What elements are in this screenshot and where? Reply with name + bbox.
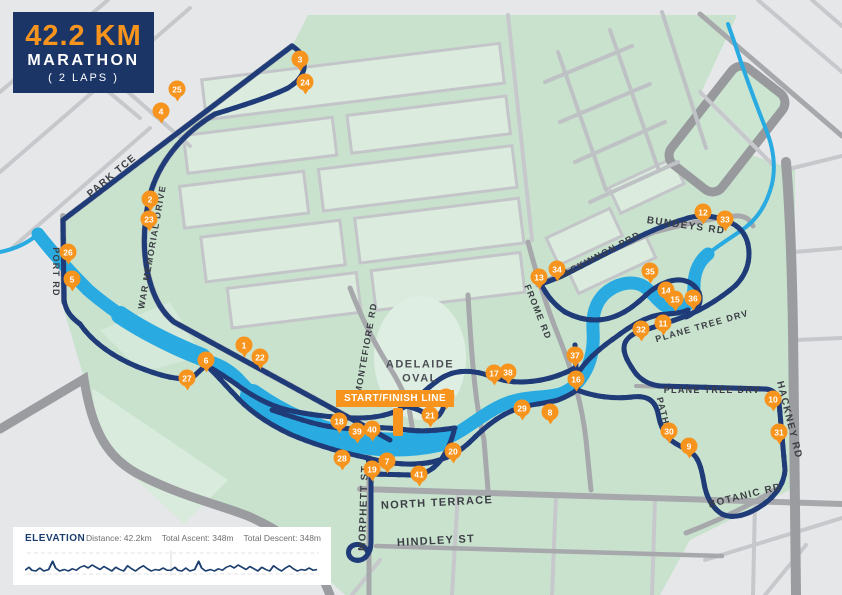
km-marker-number: 17: [489, 368, 498, 378]
km-marker-number: 22: [255, 352, 264, 362]
km-marker-number: 8: [548, 407, 553, 417]
elevation-descent: Total Descent: 348m: [244, 533, 321, 543]
km-marker-number: 39: [352, 426, 361, 436]
km-marker-number: 12: [698, 207, 707, 217]
km-marker-number: 33: [720, 214, 729, 224]
km-marker-10: 10: [765, 391, 782, 408]
km-marker-25: 25: [169, 81, 186, 98]
km-marker-26: 26: [60, 244, 77, 261]
km-marker-number: 40: [367, 424, 376, 434]
badge-laps: ( 2 LAPS ): [48, 73, 119, 85]
km-marker-number: 11: [659, 318, 668, 328]
km-marker-number: 9: [687, 441, 692, 451]
elevation-ascent: Total Ascent: 348m: [162, 533, 234, 543]
km-marker-number: 18: [334, 416, 343, 426]
km-marker-7: 7: [379, 453, 396, 470]
km-marker-number: 24: [300, 77, 309, 87]
km-marker-38: 38: [500, 364, 517, 381]
km-marker-32: 32: [633, 321, 650, 338]
km-marker-number: 30: [664, 426, 673, 436]
km-marker-12: 12: [695, 204, 712, 221]
km-marker-number: 6: [204, 355, 209, 365]
oval-label-line1: ADELAIDE: [386, 358, 454, 372]
km-marker-number: 35: [645, 266, 654, 276]
km-marker-number: 31: [774, 427, 783, 437]
km-marker-number: 37: [570, 350, 579, 360]
elevation-panel: ELEVATION Distance: 42.2km Total Ascent:…: [13, 527, 331, 585]
km-marker-number: 7: [385, 456, 390, 466]
km-marker-number: 15: [670, 294, 679, 304]
km-marker-24: 24: [297, 74, 314, 91]
km-marker-16: 16: [568, 371, 585, 388]
km-marker-8: 8: [542, 404, 559, 421]
km-marker-number: 34: [552, 264, 561, 274]
km-marker-number: 28: [337, 453, 346, 463]
km-marker-40: 40: [364, 421, 381, 438]
km-marker-number: 3: [298, 54, 303, 64]
km-marker-number: 23: [144, 214, 153, 224]
km-marker-number: 32: [636, 324, 645, 334]
km-marker-number: 5: [70, 274, 75, 284]
km-marker-18: 18: [331, 413, 348, 430]
km-marker-33: 33: [717, 211, 734, 228]
km-marker-number: 20: [448, 446, 457, 456]
km-marker-31: 31: [771, 424, 788, 441]
km-marker-number: 1: [242, 340, 247, 350]
km-marker-number: 26: [63, 247, 72, 257]
km-marker-29: 29: [514, 400, 531, 417]
elevation-title: ELEVATION: [25, 533, 85, 544]
km-marker-22: 22: [252, 349, 269, 366]
km-marker-4: 4: [153, 103, 170, 120]
km-marker-13: 13: [531, 269, 548, 286]
km-marker-20: 20: [445, 443, 462, 460]
km-marker-number: 25: [172, 84, 181, 94]
km-marker-number: 2: [148, 194, 153, 204]
km-marker-34: 34: [549, 261, 566, 278]
course-map: START/FINISH LINE ADELAIDE OVAL PARK TCE…: [0, 0, 842, 595]
km-marker-27: 27: [179, 370, 196, 387]
start-finish-label: START/FINISH LINE: [336, 390, 454, 407]
km-marker-41: 41: [411, 466, 428, 483]
km-marker-number: 16: [571, 374, 580, 384]
km-marker-15: 15: [667, 291, 684, 308]
km-marker-number: 27: [182, 373, 191, 383]
start-finish-line-bar: [393, 408, 403, 436]
oval-label-line2: OVAL: [386, 372, 454, 386]
km-marker-21: 21: [422, 407, 439, 424]
km-marker-6: 6: [198, 352, 215, 369]
km-marker-2: 2: [142, 191, 159, 208]
km-marker-19: 19: [364, 461, 381, 478]
km-marker-number: 10: [768, 394, 777, 404]
badge-distance: 42.2 KM: [25, 21, 142, 51]
km-marker-number: 21: [425, 410, 434, 420]
km-marker-number: 19: [367, 464, 376, 474]
km-marker-23: 23: [141, 211, 158, 228]
km-marker-number: 41: [414, 469, 423, 479]
km-marker-1: 1: [236, 337, 253, 354]
km-marker-28: 28: [334, 450, 351, 467]
km-marker-number: 36: [688, 293, 697, 303]
km-marker-5: 5: [64, 271, 81, 288]
km-marker-11: 11: [655, 315, 672, 332]
badge-title: MARATHON: [27, 53, 139, 70]
km-marker-number: 4: [159, 106, 164, 116]
street-label-plane-tree-drv: PLANE TREE DRV: [664, 385, 761, 395]
km-marker-number: 29: [517, 403, 526, 413]
adelaide-oval-label: ADELAIDE OVAL: [386, 358, 454, 386]
elevation-chart: [25, 547, 321, 577]
title-badge: 42.2 KM MARATHON ( 2 LAPS ): [13, 12, 154, 93]
km-marker-number: 38: [503, 367, 512, 377]
km-marker-number: 13: [534, 272, 543, 282]
km-marker-30: 30: [661, 423, 678, 440]
elevation-distance: Distance: 42.2km: [86, 533, 152, 543]
km-marker-3: 3: [292, 51, 309, 68]
km-marker-35: 35: [642, 263, 659, 280]
km-marker-9: 9: [681, 438, 698, 455]
km-marker-36: 36: [685, 290, 702, 307]
km-marker-37: 37: [567, 347, 584, 364]
